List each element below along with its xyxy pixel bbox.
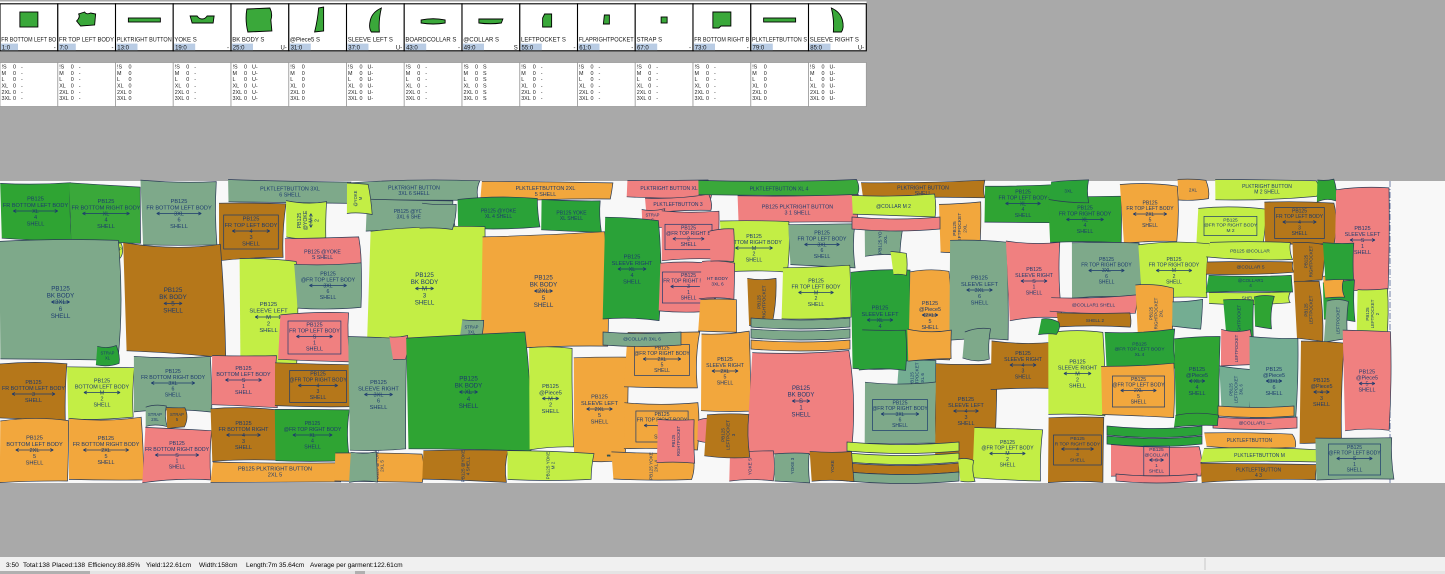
svg-text:67:0: 67:0 bbox=[637, 45, 649, 51]
svg-text:M: M bbox=[579, 71, 584, 77]
svg-text:-: - bbox=[21, 84, 23, 90]
svg-text:M: M bbox=[117, 71, 122, 77]
svg-text:Total:138: Total:138 bbox=[23, 562, 50, 569]
svg-text:0: 0 bbox=[360, 71, 363, 77]
svg-text:PB125 @COLLAR: PB125 @COLLAR bbox=[1230, 249, 1270, 255]
svg-text:XL: XL bbox=[117, 84, 124, 90]
svg-text:!S: !S bbox=[637, 65, 642, 71]
svg-text:3 1 SHELL: 3 1 SHELL bbox=[784, 210, 810, 216]
svg-text:3XL 6: 3XL 6 bbox=[711, 281, 724, 287]
svg-text:SHELL: SHELL bbox=[170, 224, 188, 230]
svg-text:0: 0 bbox=[475, 77, 478, 83]
svg-text:L: L bbox=[117, 77, 120, 83]
svg-text:3XL: 3XL bbox=[406, 96, 416, 102]
svg-text:2XL: 2XL bbox=[348, 90, 358, 96]
svg-text:-: - bbox=[21, 96, 23, 102]
svg-text:!S: !S bbox=[810, 65, 815, 71]
svg-text:-: - bbox=[425, 96, 427, 102]
svg-text:5: 5 bbox=[33, 454, 36, 460]
svg-text:SHELL: SHELL bbox=[1292, 231, 1308, 237]
svg-text:L: L bbox=[2, 77, 5, 83]
svg-text:XL 4 SHELL: XL 4 SHELL bbox=[485, 214, 513, 220]
svg-text:0: 0 bbox=[706, 90, 709, 96]
svg-text:SHELL: SHELL bbox=[165, 392, 182, 398]
svg-text:SHELL: SHELL bbox=[1077, 229, 1094, 235]
svg-text:YOKE S: YOKE S bbox=[174, 38, 196, 44]
svg-text:2XL: 2XL bbox=[810, 90, 820, 96]
svg-text:U-: U- bbox=[830, 90, 836, 96]
svg-text:0: 0 bbox=[13, 71, 16, 77]
svg-text:SHELL: SHELL bbox=[1069, 383, 1086, 389]
svg-text:XL: XL bbox=[32, 209, 39, 215]
svg-text:SHELL: SHELL bbox=[1131, 399, 1147, 405]
svg-text:M 2: M 2 bbox=[1227, 228, 1235, 234]
svg-text:0: 0 bbox=[129, 84, 132, 90]
svg-text:U-: U- bbox=[368, 90, 374, 96]
svg-text:2XL: 2XL bbox=[464, 90, 474, 96]
svg-text:M: M bbox=[637, 71, 642, 77]
svg-text:PB125: PB125 bbox=[260, 302, 277, 308]
svg-text:SHELL: SHELL bbox=[1142, 223, 1158, 229]
svg-text:25:0: 25:0 bbox=[233, 45, 245, 51]
svg-text:2XL: 2XL bbox=[233, 90, 243, 96]
svg-text:0: 0 bbox=[648, 90, 651, 96]
svg-text:-: - bbox=[541, 71, 543, 77]
svg-text:SHELL: SHELL bbox=[163, 307, 183, 314]
svg-text:-: - bbox=[599, 84, 601, 90]
svg-text:2XL: 2XL bbox=[151, 417, 159, 422]
svg-text:0: 0 bbox=[302, 90, 305, 96]
svg-text:SHELL: SHELL bbox=[459, 403, 479, 410]
svg-text:-: - bbox=[656, 96, 658, 102]
svg-text:@COLLAR1 —: @COLLAR1 — bbox=[1239, 421, 1272, 427]
svg-text:Yield:122.61cm: Yield:122.61cm bbox=[146, 562, 192, 569]
svg-text:3XL: 3XL bbox=[117, 96, 127, 102]
svg-text:M: M bbox=[2, 71, 7, 77]
svg-text:XL: XL bbox=[406, 84, 413, 90]
svg-text:LEFTPOCKET: LEFTPOCKET bbox=[1336, 306, 1341, 334]
svg-text:L: L bbox=[233, 77, 236, 83]
svg-text:BOARDCOLLAR S: BOARDCOLLAR S bbox=[405, 38, 456, 44]
svg-text:85:0: 85:0 bbox=[810, 45, 822, 51]
svg-text:XL: XL bbox=[348, 84, 355, 90]
svg-text:@COLLAR: @COLLAR bbox=[1144, 452, 1169, 458]
svg-text:BK BODY S: BK BODY S bbox=[232, 38, 264, 44]
svg-text:0: 0 bbox=[13, 84, 16, 90]
svg-text:0: 0 bbox=[360, 96, 363, 102]
svg-text:0: 0 bbox=[71, 71, 74, 77]
svg-text:61:0: 61:0 bbox=[579, 45, 591, 51]
svg-text:SHELL: SHELL bbox=[1026, 290, 1043, 296]
svg-text:SHELL: SHELL bbox=[1347, 467, 1363, 473]
svg-text:0: 0 bbox=[302, 71, 305, 77]
svg-text:RIGHTPOCKET: RIGHTPOCKET bbox=[1309, 245, 1314, 277]
svg-text:!S: !S bbox=[175, 65, 180, 71]
svg-text:0: 0 bbox=[475, 65, 478, 71]
svg-text:PB125: PB125 bbox=[971, 276, 988, 282]
svg-text:SHELL: SHELL bbox=[1000, 462, 1016, 468]
svg-text:FR BOTTOM LEFT BO: FR BOTTOM LEFT BO bbox=[1, 38, 56, 44]
svg-text:SHELL: SHELL bbox=[26, 460, 44, 466]
svg-text:L: L bbox=[579, 77, 582, 83]
svg-text:-: - bbox=[599, 77, 601, 83]
svg-text:0: 0 bbox=[417, 71, 420, 77]
svg-text:0: 0 bbox=[475, 71, 478, 77]
svg-text:0: 0 bbox=[475, 96, 478, 102]
svg-text:-: - bbox=[425, 77, 427, 83]
svg-text:3XL: 3XL bbox=[348, 96, 358, 102]
svg-text:RIGHTPOCKET: RIGHTPOCKET bbox=[676, 425, 681, 456]
svg-text:0: 0 bbox=[533, 96, 536, 102]
svg-text:-: - bbox=[79, 71, 81, 77]
svg-text:0: 0 bbox=[764, 77, 767, 83]
svg-text:S SHELL: S SHELL bbox=[312, 255, 333, 261]
svg-text:SHELL: SHELL bbox=[415, 299, 435, 306]
svg-text:M: M bbox=[810, 71, 815, 77]
svg-text:-: - bbox=[194, 84, 196, 90]
svg-text:LEFTPOCKET: LEFTPOCKET bbox=[957, 213, 963, 245]
svg-text:3XL: 3XL bbox=[810, 96, 820, 102]
svg-text:0: 0 bbox=[648, 77, 651, 83]
svg-text:PB125: PB125 bbox=[243, 217, 260, 223]
svg-text:2XL: 2XL bbox=[579, 90, 589, 96]
svg-text:XL: XL bbox=[637, 84, 644, 90]
svg-text:!S: !S bbox=[695, 65, 700, 71]
svg-text:PB125: PB125 bbox=[370, 380, 387, 386]
svg-text:3XL: 3XL bbox=[174, 212, 184, 218]
svg-text:XL: XL bbox=[175, 84, 182, 90]
svg-text:XL: XL bbox=[2, 84, 9, 90]
svg-text:RIGHTPOCKET: RIGHTPOCKET bbox=[762, 285, 767, 318]
svg-text:YOKE 3: YOKE 3 bbox=[790, 457, 795, 474]
svg-text:U-: U- bbox=[252, 71, 258, 77]
svg-text:0: 0 bbox=[360, 77, 363, 83]
svg-text:2XL: 2XL bbox=[2, 90, 12, 96]
svg-text:SLEEVE RIGHT S: SLEEVE RIGHT S bbox=[810, 38, 859, 44]
svg-text:SHELL: SHELL bbox=[791, 412, 811, 418]
svg-text:0: 0 bbox=[360, 65, 363, 71]
svg-text:0: 0 bbox=[648, 65, 651, 71]
svg-text:0: 0 bbox=[186, 77, 189, 83]
svg-text:-: - bbox=[656, 65, 658, 71]
svg-text:6: 6 bbox=[377, 399, 380, 405]
svg-text:0: 0 bbox=[648, 84, 651, 90]
svg-text:PB125: PB125 bbox=[171, 199, 188, 205]
svg-text:@Piece5 S: @Piece5 S bbox=[290, 38, 320, 44]
svg-text:XL: XL bbox=[752, 84, 759, 90]
svg-text:XL: XL bbox=[521, 84, 528, 90]
svg-text:S: S bbox=[799, 399, 803, 405]
svg-text:0: 0 bbox=[648, 96, 651, 102]
svg-text:0: 0 bbox=[302, 96, 305, 102]
svg-text:L: L bbox=[521, 77, 524, 83]
svg-text:0: 0 bbox=[706, 71, 709, 77]
svg-text:U-: U- bbox=[368, 84, 374, 90]
svg-text:XL: XL bbox=[105, 355, 111, 360]
svg-text:3XL: 3XL bbox=[59, 96, 69, 102]
svg-text:SHELL: SHELL bbox=[306, 346, 323, 352]
svg-text:SHELL: SHELL bbox=[310, 395, 327, 401]
svg-text:-: - bbox=[194, 71, 196, 77]
svg-text:0: 0 bbox=[764, 84, 767, 90]
svg-text:M: M bbox=[266, 315, 271, 321]
svg-text:4: 4 bbox=[104, 218, 107, 224]
svg-text:0: 0 bbox=[533, 84, 536, 90]
svg-text:-: - bbox=[656, 84, 658, 90]
svg-text:U-: U- bbox=[368, 96, 374, 102]
svg-text:FR BOTTOM RIGHT B: FR BOTTOM RIGHT B bbox=[694, 38, 749, 44]
svg-text:0: 0 bbox=[71, 65, 74, 71]
svg-text:-: - bbox=[714, 65, 716, 71]
svg-text:-: - bbox=[194, 77, 196, 83]
svg-text:0: 0 bbox=[417, 65, 420, 71]
svg-text:-: - bbox=[54, 45, 56, 51]
svg-text:3XL: 3XL bbox=[579, 96, 589, 102]
svg-text:U-: U- bbox=[830, 71, 836, 77]
svg-text:M: M bbox=[233, 71, 238, 77]
svg-text:SHELL: SHELL bbox=[892, 423, 908, 429]
svg-text:S: S bbox=[483, 65, 487, 71]
svg-text:3XL 6 SHELL: 3XL 6 SHELL bbox=[398, 191, 429, 197]
svg-text:0: 0 bbox=[417, 90, 420, 96]
svg-text:!S: !S bbox=[59, 65, 64, 71]
svg-text:-: - bbox=[541, 77, 543, 83]
svg-text:M: M bbox=[406, 71, 411, 77]
svg-text:PB125: PB125 bbox=[26, 436, 43, 442]
svg-text:1:0: 1:0 bbox=[2, 45, 11, 51]
svg-text:-: - bbox=[714, 77, 716, 83]
svg-text:2XL: 2XL bbox=[117, 90, 127, 96]
svg-text:5 SHELL: 5 SHELL bbox=[535, 192, 557, 198]
svg-text:LEFTPOCKET: LEFTPOCKET bbox=[1234, 334, 1239, 362]
svg-text:0: 0 bbox=[129, 71, 132, 77]
svg-text:SHELL: SHELL bbox=[93, 402, 110, 408]
svg-text:XL: XL bbox=[103, 212, 110, 218]
svg-text:3: 3 bbox=[1076, 452, 1079, 458]
svg-text:SHELL 2: SHELL 2 bbox=[1086, 318, 1105, 323]
svg-text:U-: U- bbox=[368, 71, 374, 77]
svg-text:R TOP RIGHT BODY: R TOP RIGHT BODY bbox=[1055, 441, 1101, 447]
svg-text:3: 3 bbox=[731, 433, 736, 436]
svg-text:0: 0 bbox=[186, 96, 189, 102]
svg-text:FR TOP LEFT BODY: FR TOP LEFT BODY bbox=[59, 38, 114, 44]
svg-text:U-: U- bbox=[858, 45, 864, 51]
svg-text:FR TOP LEFT BODY: FR TOP LEFT BODY bbox=[225, 223, 278, 229]
svg-text:BK BODY: BK BODY bbox=[788, 393, 815, 399]
svg-text:M: M bbox=[464, 71, 469, 77]
svg-text:@COLLAR 5: @COLLAR 5 bbox=[1236, 265, 1264, 271]
svg-text:U-: U- bbox=[396, 45, 402, 51]
svg-text:3XL: 3XL bbox=[975, 288, 985, 294]
svg-text:U-: U- bbox=[252, 90, 258, 96]
svg-text:SHELL: SHELL bbox=[242, 241, 260, 247]
svg-text:SHELL: SHELL bbox=[1313, 402, 1330, 408]
svg-text:-: - bbox=[79, 90, 81, 96]
svg-text:-: - bbox=[79, 65, 81, 71]
svg-text:S: S bbox=[514, 45, 518, 51]
svg-text:YOKE S: YOKE S bbox=[748, 458, 753, 475]
svg-text:-: - bbox=[541, 90, 543, 96]
svg-text:SHELL: SHELL bbox=[534, 302, 554, 309]
svg-text:SHELL: SHELL bbox=[654, 368, 670, 374]
svg-text:L: L bbox=[464, 77, 467, 83]
svg-text:0: 0 bbox=[71, 77, 74, 83]
svg-text:-: - bbox=[425, 84, 427, 90]
svg-text:U-: U- bbox=[368, 65, 374, 71]
svg-text:3XL: 3XL bbox=[468, 329, 476, 334]
svg-text:-: - bbox=[194, 90, 196, 96]
svg-text:3:50: 3:50 bbox=[6, 562, 19, 569]
svg-text:2XL: 2XL bbox=[59, 90, 69, 96]
svg-text:73:0: 73:0 bbox=[695, 45, 707, 51]
svg-text:0: 0 bbox=[533, 71, 536, 77]
svg-text:FR BOTTOM LEFT BODY: FR BOTTOM LEFT BODY bbox=[3, 203, 69, 209]
svg-text:U-: U- bbox=[280, 45, 286, 51]
svg-text:@COLLAR M 2: @COLLAR M 2 bbox=[876, 204, 911, 210]
svg-text:-: - bbox=[714, 90, 716, 96]
svg-text:@FR TOP RIGHT BODY: @FR TOP RIGHT BODY bbox=[1204, 223, 1258, 229]
svg-text:L: L bbox=[406, 77, 409, 83]
svg-text:SHELL: SHELL bbox=[370, 405, 388, 411]
svg-text:0: 0 bbox=[186, 71, 189, 77]
svg-text:XL: XL bbox=[464, 84, 471, 90]
svg-text:S: S bbox=[483, 71, 487, 77]
svg-text:SHELL: SHELL bbox=[1015, 213, 1032, 219]
svg-text:U-: U- bbox=[252, 77, 258, 83]
svg-text:3XL: 3XL bbox=[695, 96, 705, 102]
svg-text:0: 0 bbox=[764, 96, 767, 102]
svg-text:0: 0 bbox=[822, 71, 825, 77]
svg-text:0: 0 bbox=[244, 71, 247, 77]
svg-text:PB125: PB125 bbox=[624, 255, 641, 261]
svg-text:-: - bbox=[714, 96, 716, 102]
svg-text:SHELL: SHELL bbox=[1015, 374, 1032, 380]
svg-text:L: L bbox=[695, 77, 698, 83]
svg-text:-: - bbox=[79, 84, 81, 90]
svg-text:SHELL: SHELL bbox=[1166, 279, 1182, 285]
svg-text:-: - bbox=[714, 84, 716, 90]
svg-text:4: 4 bbox=[249, 229, 252, 235]
svg-text:PB125: PB125 bbox=[1070, 436, 1085, 442]
svg-text:0: 0 bbox=[533, 77, 536, 83]
svg-text:LEFTPOCKET S: LEFTPOCKET S bbox=[521, 38, 566, 44]
svg-text:2XL 5: 2XL 5 bbox=[268, 473, 282, 479]
svg-text:0: 0 bbox=[591, 96, 594, 102]
svg-text:0: 0 bbox=[186, 90, 189, 96]
svg-text:0: 0 bbox=[302, 77, 305, 83]
svg-text:3XL: 3XL bbox=[637, 96, 647, 102]
svg-text:PB125: PB125 bbox=[542, 384, 559, 390]
svg-text:0: 0 bbox=[244, 90, 247, 96]
svg-text:PB125: PB125 bbox=[1223, 217, 1238, 223]
svg-text:!S: !S bbox=[521, 65, 526, 71]
svg-text:SHELL: SHELL bbox=[169, 464, 186, 470]
svg-text:SHELL: SHELL bbox=[746, 257, 763, 263]
svg-text:PLKTLEFTBUTTON 3: PLKTLEFTBUTTON 3 bbox=[653, 202, 703, 208]
svg-text:6 SHELL: 6 SHELL bbox=[279, 192, 301, 198]
svg-text:0: 0 bbox=[129, 90, 132, 96]
svg-text:3XL: 3XL bbox=[175, 96, 185, 102]
svg-text:!S: !S bbox=[117, 65, 122, 71]
svg-text:XL: XL bbox=[877, 318, 884, 324]
svg-text:0: 0 bbox=[764, 65, 767, 71]
svg-text:SLEEVE LEFT S: SLEEVE LEFT S bbox=[348, 38, 393, 44]
svg-text:SHELL: SHELL bbox=[921, 325, 938, 331]
svg-text:PB125 PLKTRIGHT BUTTON: PB125 PLKTRIGHT BUTTON bbox=[238, 466, 312, 472]
svg-text:43:0: 43:0 bbox=[406, 45, 418, 51]
svg-text:PB125: PB125 bbox=[98, 199, 115, 205]
svg-text:Placed:138: Placed:138 bbox=[52, 562, 85, 569]
svg-text:2: 2 bbox=[549, 403, 552, 409]
svg-text:0: 0 bbox=[591, 71, 594, 77]
svg-text:-: - bbox=[541, 96, 543, 102]
svg-text:XL 4: XL 4 bbox=[1135, 352, 1145, 358]
svg-text:2XL: 2XL bbox=[695, 90, 705, 96]
svg-text:M: M bbox=[175, 71, 180, 77]
svg-text:55:0: 55:0 bbox=[522, 45, 534, 51]
svg-text:0: 0 bbox=[533, 90, 536, 96]
svg-text:-: - bbox=[714, 71, 716, 77]
svg-text:Width:158cm: Width:158cm bbox=[199, 562, 238, 569]
svg-text:2XL: 2XL bbox=[1159, 309, 1164, 317]
svg-text:31:0: 31:0 bbox=[291, 45, 303, 51]
svg-text:-: - bbox=[79, 77, 81, 83]
svg-text:0: 0 bbox=[417, 84, 420, 90]
svg-text:0: 0 bbox=[475, 84, 478, 90]
svg-text:7:0: 7:0 bbox=[60, 45, 69, 51]
svg-text:S: S bbox=[483, 90, 487, 96]
svg-text:-: - bbox=[21, 90, 23, 96]
svg-text:-: - bbox=[574, 45, 576, 51]
svg-text:0: 0 bbox=[71, 96, 74, 102]
svg-text:0: 0 bbox=[360, 90, 363, 96]
svg-text:SHELL: SHELL bbox=[681, 295, 697, 301]
svg-text:2XL: 2XL bbox=[963, 224, 969, 233]
svg-text:0: 0 bbox=[71, 90, 74, 96]
svg-text:SHELL: SHELL bbox=[1070, 458, 1086, 464]
svg-text:!S: !S bbox=[752, 65, 757, 71]
svg-text:-: - bbox=[599, 90, 601, 96]
svg-text:0: 0 bbox=[591, 65, 594, 71]
svg-text:PB125: PB125 bbox=[952, 221, 958, 236]
svg-text:PLKTRIGHT BUTTON XL: PLKTRIGHT BUTTON XL bbox=[640, 186, 698, 192]
svg-text:SHELL: SHELL bbox=[27, 221, 45, 227]
svg-text:XL: XL bbox=[695, 84, 702, 90]
svg-text:L: L bbox=[752, 77, 755, 83]
svg-text:4: 4 bbox=[630, 273, 633, 279]
svg-text:-: - bbox=[599, 96, 601, 102]
svg-text:S: S bbox=[483, 84, 487, 90]
svg-text:SLEEVE LEFT: SLEEVE LEFT bbox=[581, 401, 619, 407]
svg-text:6: 6 bbox=[978, 294, 981, 300]
svg-text:PB125: PB125 bbox=[872, 306, 889, 312]
svg-text:0: 0 bbox=[417, 77, 420, 83]
svg-text:L: L bbox=[290, 77, 293, 83]
svg-text:0: 0 bbox=[706, 84, 709, 90]
svg-text:4: 4 bbox=[1249, 283, 1252, 288]
svg-text:RIGHTPOCKET: RIGHTPOCKET bbox=[1237, 304, 1242, 335]
svg-text:SHELL: SHELL bbox=[1099, 279, 1115, 285]
svg-text:SHELL: SHELL bbox=[971, 300, 989, 306]
svg-text:U-: U- bbox=[830, 84, 836, 90]
svg-text:SHELL: SHELL bbox=[1358, 387, 1375, 393]
svg-text:!S: !S bbox=[290, 65, 295, 71]
svg-text:M: M bbox=[59, 71, 64, 77]
svg-text:-: - bbox=[21, 65, 23, 71]
svg-text:PB125: PB125 bbox=[1149, 447, 1164, 453]
svg-text:PLKTLEFTBUTTON XL 4: PLKTLEFTBUTTON XL 4 bbox=[750, 186, 809, 192]
svg-text:U-: U- bbox=[368, 77, 374, 83]
